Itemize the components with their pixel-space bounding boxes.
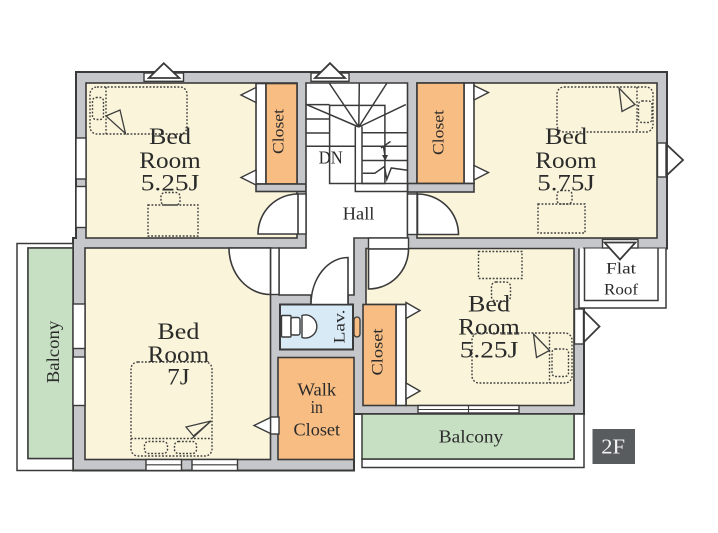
svg-text:Closet: Closet <box>294 420 341 440</box>
svg-text:Closet: Closet <box>370 328 387 376</box>
svg-text:Flat: Flat <box>606 261 637 278</box>
svg-text:Room: Room <box>139 148 201 173</box>
svg-text:Bed: Bed <box>468 292 511 317</box>
svg-text:Room: Room <box>535 148 597 173</box>
svg-text:Bed: Bed <box>157 319 200 344</box>
svg-text:Lav.: Lav. <box>332 310 349 344</box>
svg-text:Roof: Roof <box>604 282 639 299</box>
svg-text:Balcony: Balcony <box>43 321 63 384</box>
svg-text:Closet: Closet <box>431 109 448 155</box>
svg-text:Balcony: Balcony <box>439 426 504 446</box>
svg-text:Room: Room <box>458 315 520 340</box>
svg-text:5.25J: 5.25J <box>141 170 200 195</box>
svg-text:7J: 7J <box>167 364 190 389</box>
svg-text:in: in <box>311 397 323 417</box>
svg-text:Bed: Bed <box>149 124 192 149</box>
svg-text:5.25J: 5.25J <box>460 337 519 362</box>
svg-text:Hall: Hall <box>343 204 375 224</box>
svg-text:2F: 2F <box>601 435 625 459</box>
svg-text:Bed: Bed <box>545 124 588 149</box>
svg-text:DN: DN <box>319 148 343 168</box>
svg-text:Room: Room <box>148 342 210 367</box>
svg-text:Closet: Closet <box>271 108 288 154</box>
svg-text:5.75J: 5.75J <box>537 170 595 195</box>
